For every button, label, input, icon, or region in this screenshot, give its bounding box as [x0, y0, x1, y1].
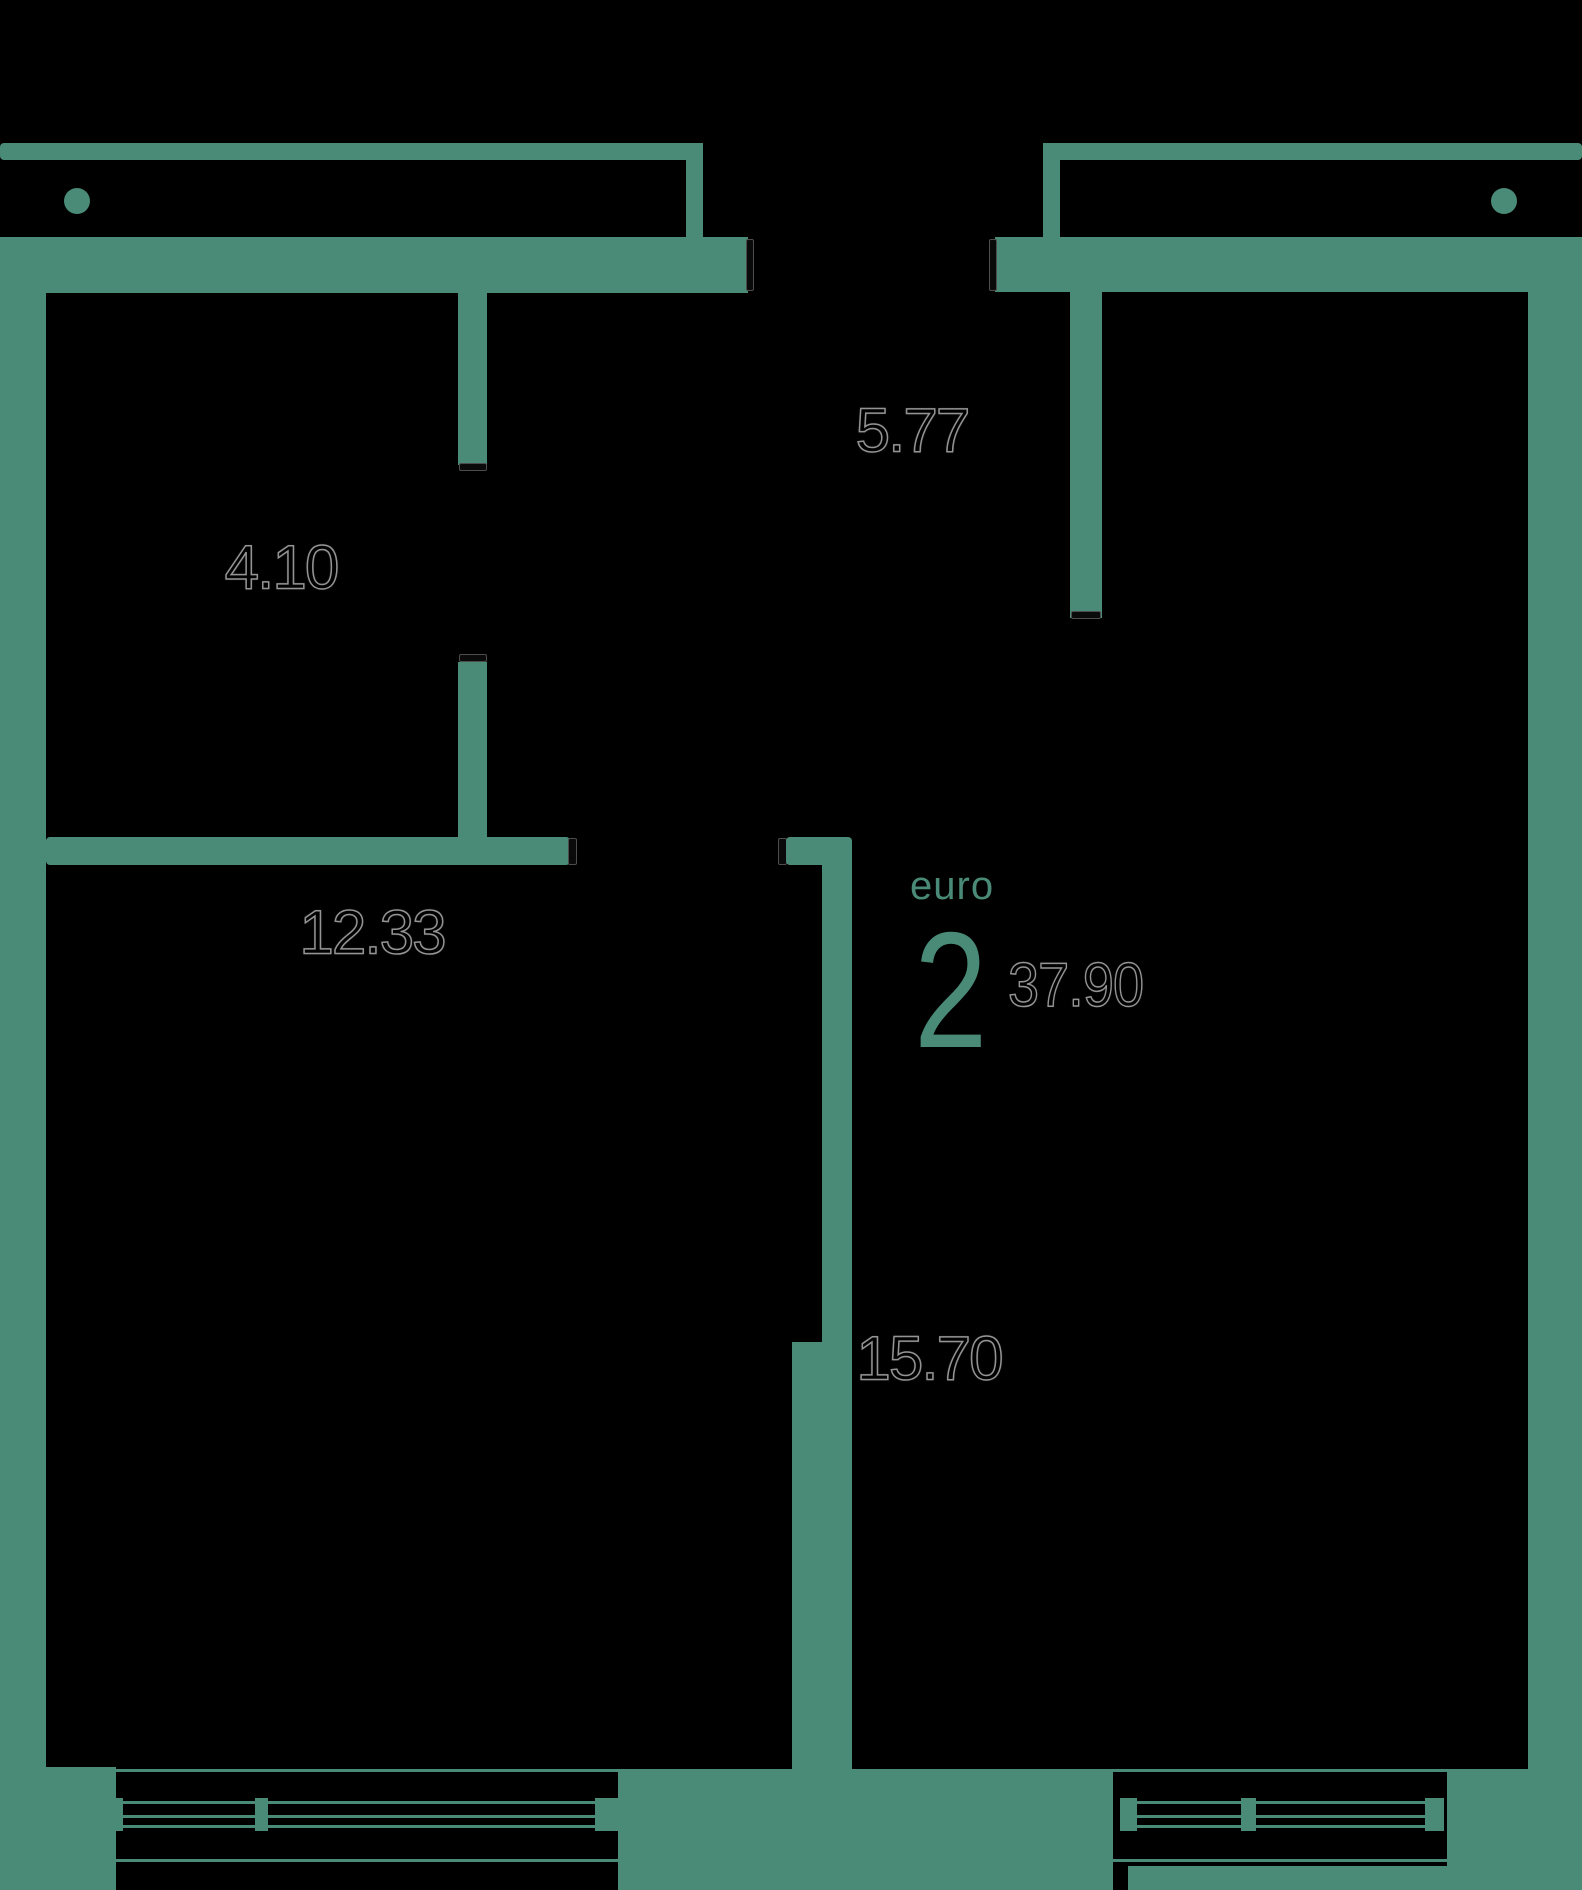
balcony-column-right	[1491, 188, 1517, 214]
window-right	[1122, 1801, 1442, 1828]
window-left-post-1	[105, 1798, 123, 1831]
window-left-post-3	[595, 1798, 618, 1831]
balcony-railing-left	[0, 143, 703, 160]
wall-right-room	[1070, 292, 1102, 618]
unit-rooms-count: 2	[914, 908, 987, 1073]
bottom-wall-strip-right	[1128, 1866, 1582, 1890]
corridor-door-jamb-bottom	[459, 654, 487, 662]
wall-room-divider-upper	[822, 855, 852, 1342]
wall-mid-horizontal	[46, 837, 570, 865]
balcony-door-jamb-left	[746, 239, 754, 291]
corridor-door-jamb-top	[459, 463, 487, 471]
window-left-glass-line	[115, 1815, 610, 1818]
window-right-post-1	[1120, 1798, 1137, 1831]
hall-door-jamb-left	[568, 838, 577, 865]
wall-top-right-segment	[995, 237, 1582, 292]
balcony-railing-left-return	[686, 143, 703, 237]
window-left-post-2	[255, 1798, 268, 1831]
room-area-label-top-left: 4.10	[225, 533, 338, 604]
unit-total-area: 37.90	[1008, 955, 1143, 1017]
room-area-label-right: 15.70	[856, 1324, 1001, 1395]
wall-top-left-segment	[0, 237, 748, 293]
wall-corridor-lower	[458, 662, 487, 837]
window-left	[107, 1801, 618, 1828]
wall-left-exterior	[0, 290, 46, 1770]
room-area-label-bottom-left: 12.33	[299, 898, 444, 969]
wall-right-exterior	[1528, 290, 1582, 1890]
balcony-railing-right-return	[1043, 143, 1060, 237]
balcony-column-left	[64, 188, 90, 214]
window-right-post-3	[1425, 1798, 1444, 1831]
bottom-wall-block-center	[618, 1770, 1113, 1890]
right-room-door-jamb	[1071, 611, 1101, 619]
floor-plan: 4.10 5.77 12.33 15.70 euro 2 37.90	[0, 0, 1582, 1890]
wall-corridor-upper	[458, 293, 487, 465]
wall-room-divider-lower	[792, 1342, 852, 1772]
bottom-wall-pier-left	[0, 1767, 116, 1890]
window-right-post-2	[1241, 1798, 1256, 1831]
balcony-railing-right	[1043, 143, 1582, 160]
room-area-label-hallway: 5.77	[856, 396, 969, 467]
window-right-glass-line	[1130, 1815, 1434, 1818]
balcony-door-jamb-right	[989, 239, 997, 291]
